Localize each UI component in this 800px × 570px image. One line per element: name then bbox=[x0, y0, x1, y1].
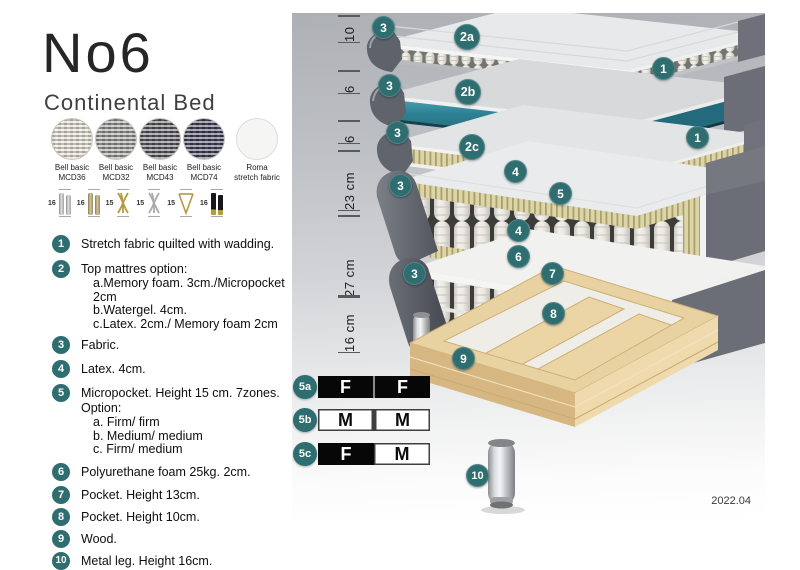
fabric-swatch-label: Bell basicMCD36 bbox=[55, 163, 89, 182]
legend-item-9: 9 Wood. bbox=[52, 530, 292, 548]
fabric-swatch-image bbox=[139, 118, 181, 160]
firmness-cell: M bbox=[375, 409, 430, 431]
fabric-swatch-label: Romastretch fabric bbox=[234, 163, 280, 182]
measurement-27cm: 27 cm bbox=[337, 215, 361, 298]
legend-number-badge: 10 bbox=[52, 552, 70, 570]
legend-text: Pocket. Height 10cm. bbox=[81, 508, 200, 525]
legend-item-3: 3 Fabric. bbox=[52, 336, 292, 354]
callout-3: 3 bbox=[378, 74, 401, 97]
version-label: 2022.04 bbox=[711, 495, 751, 507]
firmness-option-5a: 5a F F bbox=[293, 375, 430, 399]
legend-text: Stretch fabric quilted with wadding. bbox=[81, 235, 274, 252]
leg-options: 16 16 15 15 bbox=[48, 188, 229, 218]
firmness-cell: M bbox=[374, 443, 430, 465]
legend-text: Top mattres option: a.Memory foam. 3cm./… bbox=[81, 260, 292, 331]
firmness-badge: 5a bbox=[293, 375, 317, 399]
leg-height-label: 15 bbox=[167, 200, 175, 207]
legend-number-badge: 2 bbox=[52, 260, 70, 278]
legend-item-5: 5 Micropocket. Height 15 cm. 7zones. Opt… bbox=[52, 384, 292, 457]
measurement-10cm: 10 bbox=[337, 15, 361, 43]
firmness-bar: M M bbox=[318, 409, 430, 431]
fabric-swatch-label: Bell basicMCD32 bbox=[99, 163, 133, 182]
firmness-bar: F F bbox=[318, 376, 430, 398]
legend-text: Micropocket. Height 15 cm. 7zones. Optio… bbox=[81, 384, 292, 457]
leg-option-cylinder-brass: 16 bbox=[77, 188, 101, 218]
firmness-cell: F bbox=[318, 376, 373, 398]
legend-text: Fabric. bbox=[81, 336, 119, 353]
leg-height-label: 16 bbox=[77, 200, 85, 207]
black-gold-tip-leg-icon bbox=[210, 191, 224, 215]
callout-4: 4 bbox=[507, 219, 530, 242]
callout-6: 6 bbox=[507, 245, 530, 268]
leg-option-black-gold-tip: 16 bbox=[200, 188, 224, 218]
legend-number-badge: 8 bbox=[52, 508, 70, 526]
firmness-badge: 5b bbox=[293, 408, 317, 432]
callout-3: 3 bbox=[389, 174, 412, 197]
measurement-6cm-b: 6 bbox=[337, 120, 361, 144]
firmness-cell: F bbox=[375, 376, 430, 398]
fabric-swatch-image bbox=[95, 118, 137, 160]
firmness-bar: F M bbox=[318, 443, 430, 465]
callout-3: 3 bbox=[403, 262, 426, 285]
diagram-panel: 10 6 6 23 cm 27 cm 16 cm 3 2a 1 3 2b 1 3… bbox=[292, 13, 765, 520]
legend-item-1: 1 Stretch fabric quilted with wadding. bbox=[52, 235, 292, 253]
callout-2a: 2a bbox=[454, 24, 480, 50]
fabric-swatch-image bbox=[183, 118, 225, 160]
legend-text: Wood. bbox=[81, 530, 117, 547]
leg-height-label: 16 bbox=[200, 200, 208, 207]
legend-item-8: 8 Pocket. Height 10cm. bbox=[52, 508, 292, 526]
legend-item-10: 10 Metal leg. Height 16cm. bbox=[52, 552, 292, 570]
callout-10: 10 bbox=[466, 464, 489, 487]
legend-text: Metal leg. Height 16cm. bbox=[81, 552, 212, 569]
measurement-6cm-a: 6 bbox=[337, 70, 361, 94]
leg-height-label: 15 bbox=[106, 200, 114, 207]
callout-7: 7 bbox=[541, 262, 564, 285]
fabric-swatch-mcd36: Bell basicMCD36 bbox=[50, 118, 94, 182]
callout-3: 3 bbox=[386, 121, 409, 144]
measurement-16cm: 16 cm bbox=[337, 295, 361, 353]
fabric-swatches: Bell basicMCD36 Bell basicMCD32 Bell bas… bbox=[50, 118, 286, 182]
legend-item-6: 6 Polyurethane foam 25kg. 2cm. bbox=[52, 463, 292, 481]
fabric-swatch-mcd32: Bell basicMCD32 bbox=[94, 118, 138, 182]
firmness-option-5c: 5c F M bbox=[293, 442, 430, 466]
legend-number-badge: 9 bbox=[52, 530, 70, 548]
cylinder-brass-leg-icon bbox=[87, 191, 101, 215]
fabric-swatch-roma: Romastretch fabric bbox=[228, 118, 286, 182]
callout-5: 5 bbox=[549, 182, 572, 205]
leg-option-cross-silver: 15 bbox=[136, 188, 162, 218]
leg-height-label: 16 bbox=[48, 200, 56, 207]
leg-option-hairpin-gold: 15 bbox=[167, 188, 195, 218]
legend-text: Polyurethane foam 25kg. 2cm. bbox=[81, 463, 251, 480]
firmness-option-5b: 5b M M bbox=[293, 408, 430, 432]
leg-option-cylinder-silver: 16 bbox=[48, 188, 72, 218]
legend-list: 1 Stretch fabric quilted with wadding. 2… bbox=[52, 235, 292, 570]
firmness-cell: F bbox=[318, 443, 374, 465]
legend-number-badge: 6 bbox=[52, 463, 70, 481]
legend-item-7: 7 Pocket. Height 13cm. bbox=[52, 486, 292, 504]
fabric-swatch-image bbox=[236, 118, 278, 160]
callout-1: 1 bbox=[652, 57, 675, 80]
callout-9: 9 bbox=[452, 347, 475, 370]
legend-text: Pocket. Height 13cm. bbox=[81, 486, 200, 503]
legend-text: Latex. 4cm. bbox=[81, 360, 146, 377]
leg-height-label: 15 bbox=[136, 200, 144, 207]
fabric-swatch-label: Bell basicMCD43 bbox=[143, 163, 177, 182]
legend-number-badge: 7 bbox=[52, 486, 70, 504]
callout-2b: 2b bbox=[455, 79, 481, 105]
page-title: No6 bbox=[42, 20, 154, 85]
cross-silver-leg-icon bbox=[146, 191, 162, 215]
hairpin-gold-leg-icon bbox=[177, 191, 195, 215]
firmness-cell: M bbox=[318, 409, 373, 431]
measurement-23cm: 23 cm bbox=[337, 150, 361, 211]
legend-number-badge: 3 bbox=[52, 336, 70, 354]
callout-3: 3 bbox=[372, 16, 395, 39]
legend-item-4: 4 Latex. 4cm. bbox=[52, 360, 292, 378]
cross-gold-leg-icon bbox=[115, 191, 131, 215]
fabric-swatch-mcd74: Bell basicMCD74 bbox=[182, 118, 226, 182]
callout-4: 4 bbox=[504, 160, 527, 183]
fabric-swatch-mcd43: Bell basicMCD43 bbox=[138, 118, 182, 182]
leg-option-cross-gold: 15 bbox=[106, 188, 132, 218]
legend-number-badge: 5 bbox=[52, 384, 70, 402]
legend-number-badge: 4 bbox=[52, 360, 70, 378]
page-subtitle: Continental Bed bbox=[44, 90, 216, 116]
callout-2c: 2c bbox=[459, 134, 485, 160]
cylinder-silver-leg-icon bbox=[58, 191, 72, 215]
legend-number-badge: 1 bbox=[52, 235, 70, 253]
callout-8: 8 bbox=[542, 302, 565, 325]
callout-1: 1 bbox=[686, 126, 709, 149]
firmness-badge: 5c bbox=[293, 442, 317, 466]
fabric-swatch-image bbox=[51, 118, 93, 160]
fabric-swatch-label: Bell basicMCD74 bbox=[187, 163, 221, 182]
legend-item-2: 2 Top mattres option: a.Memory foam. 3cm… bbox=[52, 260, 292, 331]
